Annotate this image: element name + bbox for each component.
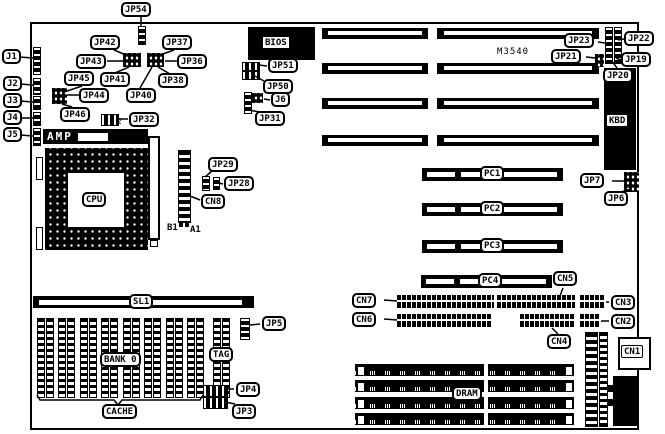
jp23-label: JP23 <box>564 33 594 48</box>
dram-label: DRAM <box>452 386 482 401</box>
jp32-pin2-text: 2 <box>117 117 122 127</box>
a1-text: A1 <box>190 225 201 235</box>
jp22-label: JP22 <box>624 31 654 46</box>
cn1-label: CN1 <box>621 345 643 358</box>
motherboard-diagram: 2 JP54 JP42 JP37 JP43 JP36 JP45 JP41 JP3… <box>0 0 665 434</box>
jp38-label: JP38 <box>158 73 188 88</box>
jp5-label: JP5 <box>262 316 286 331</box>
jp41-label: JP41 <box>100 72 130 87</box>
jp36-label: JP36 <box>177 54 207 69</box>
jp45-label: JP45 <box>64 71 94 86</box>
sl1-label: SL1 <box>129 294 153 309</box>
jp31-label: JP31 <box>255 111 285 126</box>
jp46-label: JP46 <box>60 107 90 122</box>
cn5-label: CN5 <box>553 271 577 286</box>
jp4-label: JP4 <box>236 382 260 397</box>
jp3-label: JP3 <box>232 404 256 419</box>
jp19-label: JP19 <box>621 52 651 67</box>
cn6-label: CN6 <box>352 312 376 327</box>
pc4-label: PC4 <box>478 273 502 288</box>
jp20-label: JP20 <box>603 68 633 83</box>
cn8-label: CN8 <box>201 194 225 209</box>
b1-text: B1 <box>167 223 178 233</box>
cn2-label: CN2 <box>611 314 635 329</box>
chipset-text: M3540 <box>497 47 529 57</box>
cache-label: CACHE <box>102 404 137 419</box>
pc1-label: PC1 <box>480 166 504 181</box>
jp37-label: JP37 <box>162 35 192 50</box>
bank0-label: BANK 0 <box>100 352 141 367</box>
jp32-label: JP32 <box>129 112 159 127</box>
jp28-label: JP28 <box>224 176 254 191</box>
tag-label: TAG <box>209 347 233 362</box>
jp40-label: JP40 <box>126 88 156 103</box>
j1-label: J1 <box>2 49 21 64</box>
cn7-label: CN7 <box>352 293 376 308</box>
jp42-label: JP42 <box>90 35 120 50</box>
cpu-label: CPU <box>82 192 106 207</box>
jp6-label: JP6 <box>604 191 628 206</box>
jp7-label: JP7 <box>580 173 604 188</box>
j4-label: J4 <box>3 110 22 125</box>
jp43-label: JP43 <box>76 54 106 69</box>
cn3-label: CN3 <box>611 295 635 310</box>
jp29-label: JP29 <box>208 157 238 172</box>
pc3-label: PC3 <box>480 238 504 253</box>
kbd-label: KBD <box>606 114 628 127</box>
j6-label: J6 <box>271 92 290 107</box>
jp51-label: JP51 <box>268 58 298 73</box>
j3-label: J3 <box>3 93 22 108</box>
cn4-label: CN4 <box>547 334 571 349</box>
jp54-label: JP54 <box>121 2 151 17</box>
j5-label: J5 <box>3 127 22 142</box>
pc2-label: PC2 <box>480 201 504 216</box>
bios-label: BIOS <box>262 36 290 49</box>
j2-label: J2 <box>3 76 22 91</box>
jp44-label: JP44 <box>79 88 109 103</box>
jp21-label: JP21 <box>551 49 581 64</box>
